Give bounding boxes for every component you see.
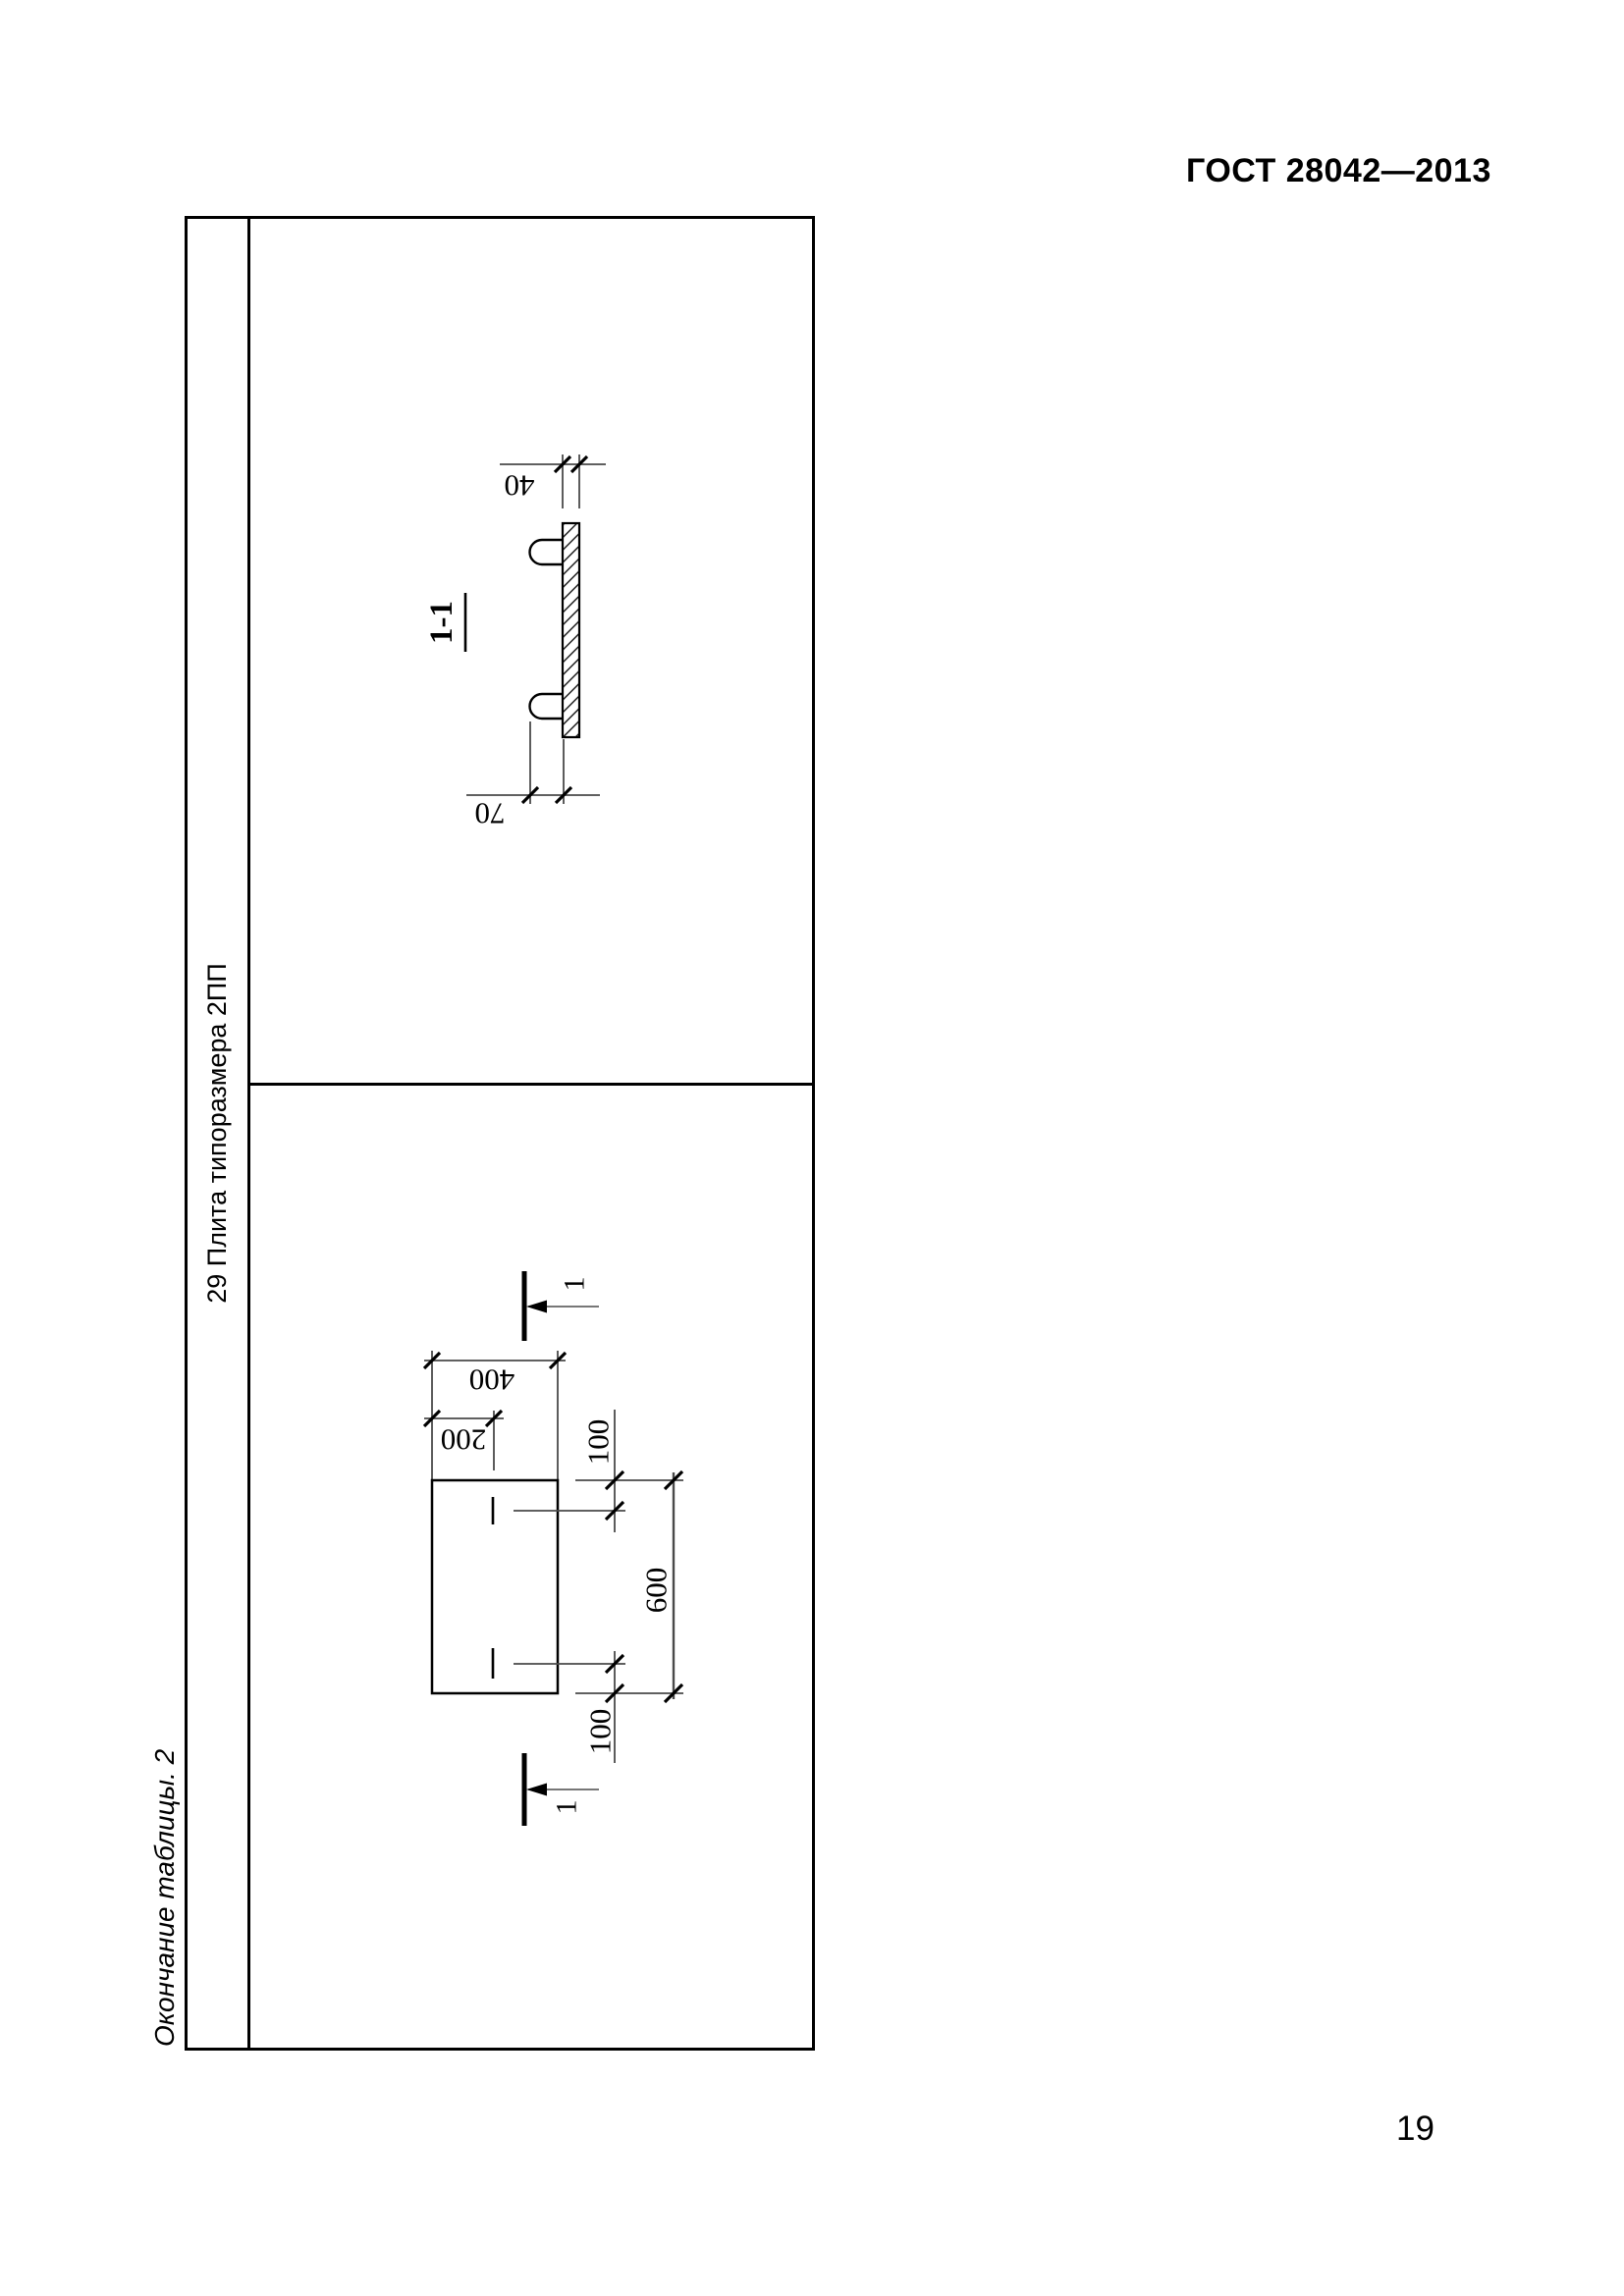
dim-100-bottom-label: 100	[583, 1709, 618, 1755]
dim-40-label: 40	[505, 469, 535, 504]
section-mark-top: 1	[524, 1271, 599, 1341]
dim-100-top-label: 100	[581, 1419, 616, 1466]
section-mark-bottom-label: 1	[551, 1800, 583, 1815]
drawings-table: 29 Плита типоразмера 2ПП	[185, 216, 815, 2051]
dim-70-label: 70	[475, 797, 506, 831]
plan-view-drawing: 1 400 200	[250, 1086, 815, 2048]
section-mark-top-label: 1	[559, 1277, 591, 1292]
section-mark-bottom: 1	[524, 1753, 599, 1826]
dim-600-label: 600	[639, 1568, 674, 1614]
dim-400-label: 400	[469, 1363, 515, 1398]
plate-section-body	[563, 523, 579, 737]
table-continuation-caption: Окончание таблицы. 2	[149, 1749, 181, 2047]
doc-number: ГОСТ 28042—2013	[1186, 152, 1491, 190]
plate-plan-outline	[432, 1480, 558, 1693]
document-page: ГОСТ 28042—2013 Окончание таблицы. 2 29 …	[0, 0, 1624, 2296]
dim-200-label: 200	[441, 1423, 487, 1458]
section-view-drawing: 40 1-1 70	[250, 219, 815, 1083]
table-row-header-cell: 29 Плита типоразмера 2ПП	[188, 219, 250, 2048]
row-header-text: 29 Плита типоразмера 2ПП	[202, 963, 233, 1304]
section-title: 1-1	[424, 601, 460, 644]
lifting-loops-section	[530, 540, 564, 719]
page-number: 19	[1396, 2109, 1435, 2149]
